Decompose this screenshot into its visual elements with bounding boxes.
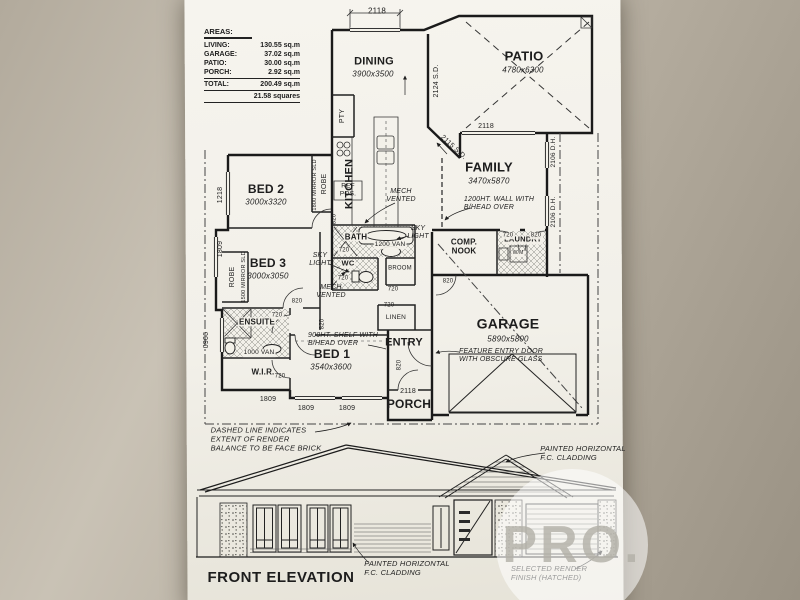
patio-label: PATIO xyxy=(505,48,544,63)
elevation-windows xyxy=(253,505,449,552)
areas-row-porch: PORCH:2.92 sq.m xyxy=(204,68,300,77)
door-720-ensuite: 720 xyxy=(271,312,284,319)
bath-label: BATH xyxy=(344,232,368,241)
photo-background: AREAS: LIVING:130.55 sq.m GARAGE:37.02 s… xyxy=(0,0,800,600)
dim-1809-window-left: 1809 xyxy=(217,241,225,257)
door-720-broom: 720 xyxy=(388,286,399,293)
patio-dashed-diagonals xyxy=(466,22,589,128)
mech-vented-note-wc: MECH VENTED xyxy=(316,284,346,301)
shelf-note: 900HT. SHELF WITH B/HEAD OVER xyxy=(308,332,378,349)
entry-label: ENTRY xyxy=(385,337,423,350)
areas-table: AREAS: LIVING:130.55 sq.m GARAGE:37.02 s… xyxy=(204,27,300,103)
render-extent-note: DASHED LINE INDICATES EXTENT OF RENDER B… xyxy=(211,427,322,454)
door-820-laundry: 820 xyxy=(530,232,543,239)
washing-machine-label: W/M xyxy=(512,251,525,257)
family-room-label: FAMILY xyxy=(465,159,513,174)
bed3-mirror-door-label: 1500 MIRROR SLD xyxy=(241,251,247,302)
dining-room-size: 3900x3500 xyxy=(352,69,393,78)
door-820-bed3: 820 xyxy=(292,298,303,305)
bed2-label: BED 2 xyxy=(248,182,284,196)
entry-door-louvres xyxy=(459,511,470,541)
pro-watermark-text: PRO. xyxy=(502,515,641,575)
bed2-size: 3000x3320 xyxy=(245,197,286,206)
garage-size: 5890x5800 xyxy=(487,334,528,343)
dim-1809-bottom-3: 1809 xyxy=(339,405,355,413)
cladding-note-top: PAINTED HORIZONTAL F.C. CLADDING xyxy=(540,445,625,463)
areas-row-living: LIVING:130.55 sq.m xyxy=(204,41,300,50)
dim-2106-window-lower: 2106 D.H. xyxy=(550,196,558,227)
porch-label: PORCH xyxy=(387,397,431,411)
brick-pier-left xyxy=(220,503,247,557)
bed3-size: 3000x3050 xyxy=(247,271,288,280)
dim-1809-bottom-1: 1809 xyxy=(260,396,276,404)
bed1-label: BED 1 xyxy=(314,347,350,361)
dim-2106-window-upper: 2106 D.H. xyxy=(550,136,558,167)
front-elevation-title: FRONT ELEVATION xyxy=(208,569,355,587)
kitchen-sink-bowl xyxy=(377,151,394,164)
cladding-note-bottom: PAINTED HORIZONTAL F.C. CLADDING xyxy=(364,560,449,578)
bed2-robe-label: ROBE xyxy=(321,174,329,195)
dim-2124-sliding-door: 2124 S.D. xyxy=(433,65,441,98)
family-room-size: 3470x5870 xyxy=(468,176,509,185)
entry-door-brace xyxy=(456,501,490,553)
dining-room-label: DINING xyxy=(354,56,394,69)
dim-1218-window: 1218 xyxy=(217,187,225,203)
dim-2118-dining: 2118 xyxy=(368,6,386,15)
door-720-linen: 720 xyxy=(384,302,395,309)
door-720-wir: 720 xyxy=(275,373,286,380)
cooktop-burner xyxy=(337,142,343,148)
comp-nook-label: COMP. NOOK xyxy=(451,238,477,257)
cooktop-burner xyxy=(344,142,350,148)
sky-light-note-bath: SKY LIGHT xyxy=(407,225,429,242)
wc-cistern xyxy=(352,271,359,282)
ensuite-toilet xyxy=(225,342,235,354)
fridge-position-label: REF POS. xyxy=(340,182,356,197)
areas-squares: 21.58 squares xyxy=(204,91,300,103)
dim-2118-family: 2118 xyxy=(477,123,495,131)
bed3-robe-label: ROBE xyxy=(229,267,237,288)
bed2-mirror-door-label: 1800 MIRROR SLD xyxy=(312,159,318,210)
dim-0906-window: 0906 xyxy=(203,332,211,348)
areas-title: AREAS: xyxy=(204,27,252,39)
door-720-bath: 720 xyxy=(338,247,351,254)
door-820-garage: 820 xyxy=(443,278,454,285)
areas-row-patio: PATIO:30.00 sq.m xyxy=(204,59,300,68)
patio-size: 4780x6300 xyxy=(502,65,543,74)
dim-1809-bottom-2: 1809 xyxy=(298,405,314,413)
ensuite-vanity-label: 1000 VAN xyxy=(243,349,276,357)
pantry-label: PTY xyxy=(339,109,347,123)
garage-label: GARAGE xyxy=(477,316,540,333)
mech-vented-note-bath: MECH VENTED xyxy=(386,188,416,205)
feature-door-note: FEATURE ENTRY DOOR WITH OBSCURE GLASS xyxy=(459,348,543,365)
cooktop-burner xyxy=(337,150,343,156)
wir-label: W.I.R. xyxy=(252,367,275,376)
kitchen-sink-bowl xyxy=(377,136,394,149)
door-720-wc: 720 xyxy=(337,275,350,282)
cooktop-burner xyxy=(344,150,350,156)
dim-2118-porch: 2118 xyxy=(400,388,416,396)
bed3-label: BED 3 xyxy=(250,256,286,270)
bath-vanity-label: 1200 VAN xyxy=(374,241,407,249)
wc-toilet xyxy=(359,272,373,283)
bath-tub-inner xyxy=(366,231,406,241)
door-820-bed2: 820 xyxy=(331,214,338,225)
areas-row-total: TOTAL:200.49 sq.m xyxy=(204,78,300,91)
areas-row-garage: GARAGE:37.02 sq.m xyxy=(204,50,300,59)
sky-light-note-wc: SKY LIGHT xyxy=(309,252,331,269)
half-wall-note: 1200HT. WALL WITH B/HEAD OVER xyxy=(464,196,534,213)
linen-label: LINEN xyxy=(386,314,406,322)
bed1-size: 3540x3600 xyxy=(310,362,351,371)
door-820-entry: 820 xyxy=(396,360,403,371)
door-820-hall: 820 xyxy=(319,319,326,330)
wc-label: WC xyxy=(341,260,356,269)
door-720-laundry: 720 xyxy=(502,232,515,239)
broom-label: BROOM xyxy=(388,265,412,272)
plan-linework xyxy=(0,0,800,600)
